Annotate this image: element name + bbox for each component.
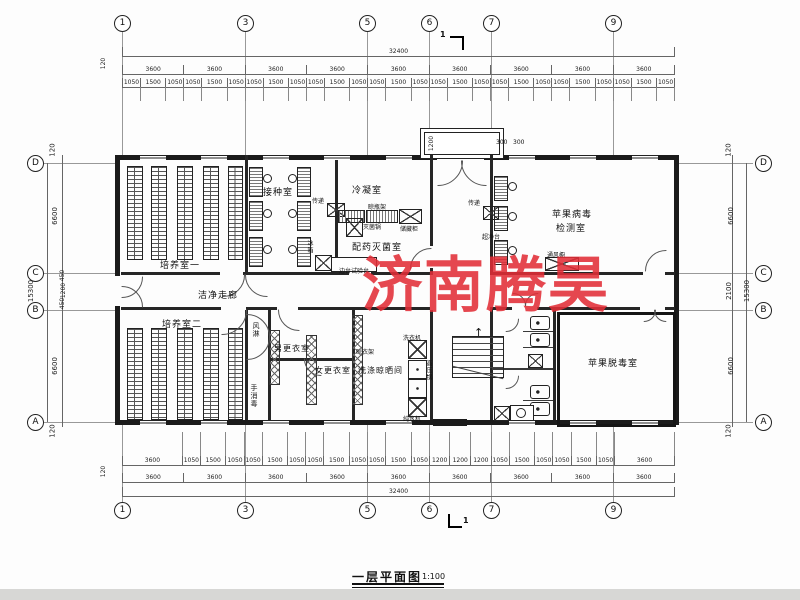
wall-left-upper: [115, 155, 120, 276]
wall-c: [665, 272, 675, 275]
section-mark-top-icon: [450, 36, 464, 50]
dim-row-bottom-bays: 360036003600360036003600360036003600: [122, 474, 675, 483]
dim-value-total-top: 32400: [122, 47, 675, 57]
dim-right-total: 15300: [743, 280, 751, 302]
dim-value: 1500: [324, 456, 349, 466]
section-mark-bottom-label: 1: [463, 516, 469, 525]
window: [324, 420, 350, 425]
grid-line-A-r: [679, 422, 753, 423]
dim-value: 1500: [509, 78, 534, 88]
dim-left-3: 1200: [60, 283, 67, 298]
stool: [288, 245, 297, 254]
sterilizer-box: [346, 218, 363, 237]
grid-bubble-bottom-9: 9: [605, 502, 622, 519]
dim-value: 3600: [430, 65, 491, 75]
shelf-rack: [151, 166, 167, 260]
room-label-condensation: 冷凝室: [352, 183, 382, 196]
room-label-hand-disinfect: 手消毒: [249, 384, 259, 408]
dim-value: 1050: [245, 456, 263, 466]
grid-bubble-bottom-6: 6: [421, 502, 438, 519]
window: [140, 420, 166, 425]
washer-box: [408, 340, 427, 359]
dim-value: 1050: [412, 456, 430, 466]
dim-value: 1500: [570, 78, 595, 88]
sterilizer-label: 灭菌锅: [363, 222, 381, 231]
drying-rack-label: 晾衣架: [356, 347, 374, 356]
mop-sink: [528, 354, 543, 368]
pass-window-box: [483, 206, 499, 220]
room-label-virus-free: 苹果脱毒室: [588, 356, 638, 369]
dim-right-0: 120: [725, 143, 733, 156]
dim-value: 1050: [350, 78, 368, 88]
grid-bubble-left-A: A: [27, 414, 44, 431]
room-label-culture1: 培养室一: [160, 258, 200, 271]
dim-edge-top: 120: [100, 58, 107, 69]
room-label-inoculation: 接种室: [263, 185, 293, 198]
dim-left-4: 450: [59, 298, 66, 309]
clean-bench: [494, 176, 508, 201]
dim-value: 3600: [122, 473, 184, 483]
stairs-up-arrow: ↑: [474, 326, 483, 339]
dim-value: 1500: [202, 78, 227, 88]
section-mark-bottom-icon: [448, 514, 462, 528]
dim-row-bottom-detail: 3600105015001050105015001050105015001050…: [122, 457, 675, 466]
dim-value: 3600: [552, 65, 613, 75]
grid-line-C-r: [679, 273, 753, 274]
wall-b: [246, 307, 277, 310]
window: [509, 420, 535, 425]
clean-bench-label: 超净台: [482, 232, 500, 241]
dim-value: 3600: [184, 65, 245, 75]
dim-value: 1500: [325, 78, 350, 88]
wall-b: [665, 307, 675, 310]
window: [509, 155, 535, 160]
dim-value: 3600: [368, 65, 429, 75]
room-label-detection-2: 检测室: [556, 221, 586, 234]
dim-value: 1050: [350, 456, 368, 466]
stool: [508, 182, 517, 191]
grid-bubble-top-3: 3: [237, 15, 254, 32]
shelf-rack: [127, 166, 143, 260]
dim-value: 1500: [510, 456, 535, 466]
dim-value: 1050: [368, 456, 386, 466]
window: [263, 420, 289, 425]
locker-cabinet: [352, 315, 363, 405]
grid-line-A: [44, 422, 115, 423]
clean-bench: [249, 237, 263, 267]
grid-line-D: [44, 163, 115, 164]
wash-unit: [494, 406, 510, 421]
dim-value: 3600: [307, 65, 368, 75]
dim-value: 3600: [122, 65, 184, 75]
dim-value: 1050: [166, 78, 184, 88]
room-label-washing: 洗涤晾晒间: [358, 365, 403, 376]
toilet-fixture: [530, 385, 550, 399]
dim-value: 1050: [491, 78, 509, 88]
dim-value: 1500: [264, 78, 289, 88]
pass-window-label: 传递: [312, 196, 324, 205]
porch-inner: [424, 132, 500, 155]
drawing-scale: 1:100: [422, 572, 445, 581]
wall-left-lower: [115, 306, 120, 425]
stool: [263, 245, 272, 254]
washbasin-bowl: [516, 408, 526, 418]
dim-value: 3600: [615, 456, 675, 466]
dim-value: 1200: [450, 456, 471, 466]
dim-left-0: 120: [49, 143, 57, 156]
grid-bubble-left-B: B: [27, 302, 44, 319]
shelf-rack: [177, 166, 193, 260]
title-underline-thin: [352, 587, 444, 588]
shelf-rack: [127, 328, 143, 420]
corridor-left-door-leaf: [101, 286, 143, 328]
room-label-culture2: 培养室二: [162, 317, 202, 330]
shelf-rack: [203, 166, 219, 260]
wall-hall-left-upper: [430, 155, 433, 246]
stool: [263, 209, 272, 218]
autoclave-label: 高压锅: [424, 360, 433, 381]
dim-value: 1050: [368, 78, 386, 88]
wall-grid3-upper: [245, 155, 248, 272]
rear-doorstep: [433, 419, 467, 426]
grid-bubble-right-A: A: [755, 414, 772, 431]
grid-bubble-top-7: 7: [483, 15, 500, 32]
grid-line-B: [44, 310, 115, 311]
stool: [288, 209, 297, 218]
dim-value: 1050: [535, 456, 553, 466]
wall-c: [121, 272, 220, 275]
storage-cabinet-label: 储藏柜: [400, 224, 418, 233]
dim-value: 1050: [228, 78, 246, 88]
grid-bubble-bottom-1: 1: [114, 502, 131, 519]
dim-value: 1050: [552, 78, 570, 88]
dim-row-top-bays: 360036003600360036003600360036003600: [122, 66, 675, 75]
autoclave-box: [408, 379, 427, 398]
dim-value: 1050: [289, 78, 307, 88]
shelf-rack: [151, 328, 167, 420]
grid-bubble-top-5: 5: [359, 15, 376, 32]
dim-row-top-detail: 1050150010501050150010501050150010501050…: [122, 79, 675, 88]
dim-value: 1500: [632, 78, 657, 88]
dim-value: 1500: [448, 78, 473, 88]
dim-value: 3600: [184, 473, 245, 483]
dim-right-4: 120: [725, 424, 733, 437]
room-label-detection-1: 苹果病毒: [552, 207, 592, 220]
detection-room-door-leaf: [645, 250, 687, 292]
window: [201, 155, 227, 160]
dim-value: 3600: [246, 65, 307, 75]
dim-value: 3600: [614, 473, 675, 483]
dim-value: 3600: [491, 473, 552, 483]
dim-value: 3600: [552, 473, 613, 483]
clean-bench: [297, 201, 311, 231]
dim-right-1: 6600: [727, 207, 735, 225]
dim-value: 3600: [122, 456, 183, 466]
wall-c: [243, 272, 349, 275]
dim-value: 1050: [307, 78, 325, 88]
wall-toilet-right: [553, 310, 556, 420]
room-label-women-changing: 女更衣室: [315, 365, 351, 376]
stall-partition: [523, 347, 553, 348]
water-purifier-label: 纯水机: [403, 414, 421, 423]
grid-bubble-top-1: 1: [114, 15, 131, 32]
dim-value: 1050: [657, 78, 675, 88]
shelf-rack: [177, 328, 193, 420]
grid-bubble-left-D: D: [27, 155, 44, 172]
dim-value: 1200: [430, 456, 451, 466]
dim-left-6: 120: [49, 424, 57, 437]
bottle-rack-label: 晾瓶架: [368, 202, 386, 211]
dim-value: 1500: [141, 78, 166, 88]
porch-dim-right: 300: [513, 139, 524, 146]
dim-row-top-total: 32400: [122, 48, 675, 57]
dim-value: 1050: [306, 456, 324, 466]
clean-bench: [297, 167, 311, 197]
grid-line-C: [44, 273, 115, 274]
floor-plan-canvas: 1 3 5 6 7 9 1 3 5 6 7 9 D C B A D C B A …: [0, 0, 800, 600]
porch-dim-left: 300: [496, 139, 507, 146]
dim-left-1: 6600: [51, 207, 59, 225]
dim-row-bottom-total: 32400: [122, 488, 675, 497]
window: [632, 155, 658, 160]
dim-value: 1050: [596, 78, 614, 88]
shelf-rack: [228, 166, 243, 260]
room-label-men-changing: 男更衣室: [274, 343, 310, 354]
shelf-rack: [203, 328, 219, 420]
shelf-rack: [228, 328, 243, 420]
washer-label: 洗衣机: [403, 333, 421, 342]
dim-value: 1500: [386, 456, 411, 466]
dim-value: 1050: [226, 456, 244, 466]
dim-value: 1500: [201, 456, 226, 466]
room-label-air-shower: 风淋: [251, 322, 261, 338]
section-mark-top-label: 1: [440, 30, 446, 39]
dim-value: 1050: [288, 456, 306, 466]
grid-bubble-bottom-3: 3: [237, 502, 254, 519]
dim-value: 1050: [473, 78, 491, 88]
drawing-title: 一层平面图: [352, 568, 422, 585]
dim-left-total: 15300: [27, 280, 35, 302]
locker-cabinet: [269, 330, 280, 385]
clean-bench: [249, 201, 263, 231]
grid-bubble-right-B: B: [755, 302, 772, 319]
dim-value: 3600: [246, 473, 307, 483]
scanner-edge-strip: [0, 589, 800, 600]
dim-value: 1050: [430, 78, 448, 88]
grid-line-B-r: [679, 310, 753, 311]
dim-value: 1050: [122, 78, 141, 88]
grid-bubble-bottom-5: 5: [359, 502, 376, 519]
grid-line-D-r: [679, 163, 753, 164]
men-changing-door-leaf: [278, 289, 320, 331]
stall-partition: [523, 331, 553, 332]
virus-free-room-walls: [557, 312, 676, 427]
dim-line-left-total: [47, 163, 48, 422]
dim-value: 3600: [491, 65, 552, 75]
window: [263, 155, 289, 160]
window: [386, 155, 412, 160]
dim-value: 1050: [183, 456, 201, 466]
dim-value: 1050: [412, 78, 430, 88]
stool: [263, 174, 272, 183]
dim-value: 1050: [534, 78, 552, 88]
dim-right-3: 6600: [727, 357, 735, 375]
stool: [508, 212, 517, 221]
fridge-label: 冰箱: [305, 240, 314, 254]
grid-bubble-top-6: 6: [421, 15, 438, 32]
dim-value: 1500: [386, 78, 411, 88]
grid-bubble-right-D: D: [755, 155, 772, 172]
stool: [288, 174, 297, 183]
window: [570, 420, 596, 425]
porch-dim-depth: 1200: [428, 136, 435, 151]
dim-value: 1500: [263, 456, 288, 466]
watermark-text: 济南腾昊: [362, 256, 610, 316]
dim-value: 1050: [492, 456, 510, 466]
dim-value: 1050: [184, 78, 202, 88]
dim-left-5: 6600: [51, 357, 59, 375]
dim-right-2: 2100: [725, 282, 733, 300]
dim-value: 3600: [368, 473, 429, 483]
pass-window-label: 传递: [468, 198, 480, 207]
dim-value: 1050: [553, 456, 571, 466]
clean-bench: [249, 167, 263, 197]
window: [201, 420, 227, 425]
grid-bubble-left-C: C: [27, 265, 44, 282]
dim-value: 3600: [307, 473, 368, 483]
dim-value: 1050: [614, 78, 632, 88]
window: [140, 155, 166, 160]
grid-bubble-top-9: 9: [605, 15, 622, 32]
dim-value: 1050: [246, 78, 264, 88]
window: [632, 420, 658, 425]
storage-cabinet-box: [399, 209, 422, 224]
grid-bubble-bottom-7: 7: [483, 502, 500, 519]
toilet-fixture: [530, 333, 550, 347]
room-label-corridor: 洁净走廊: [198, 288, 238, 301]
dim-value: 3600: [614, 65, 675, 75]
wall-b: [121, 307, 221, 310]
grid-bubble-right-C: C: [755, 265, 772, 282]
stall-partition: [523, 400, 553, 401]
dim-edge-bottom: 120: [100, 466, 107, 477]
dim-value: 1050: [597, 456, 615, 466]
dim-value: 1500: [572, 456, 597, 466]
dim-value-total-bottom: 32400: [122, 487, 675, 497]
window: [324, 155, 350, 160]
dim-left-2: 450: [59, 270, 66, 281]
window: [570, 155, 596, 160]
dim-value: 3600: [430, 473, 491, 483]
fridge-box: [315, 255, 332, 271]
dim-value: 1200: [471, 456, 492, 466]
